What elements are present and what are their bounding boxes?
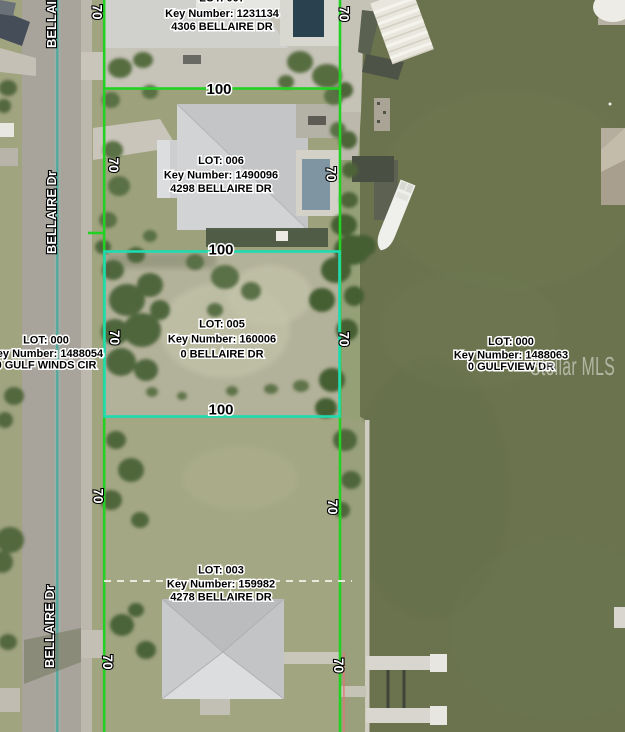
svg-text:LOT: 006: LOT: 006 (198, 155, 244, 167)
svg-text:Key Number: 1488054: Key Number: 1488054 (0, 348, 104, 360)
svg-text:4298 BELLAIRE DR: 4298 BELLAIRE DR (170, 183, 272, 195)
svg-text:100: 100 (208, 402, 233, 419)
svg-text:70: 70 (100, 654, 115, 669)
svg-text:BELLAIRE Dr: BELLAIRE Dr (42, 585, 57, 668)
svg-text:4278 BELLAIRE DR: 4278 BELLAIRE DR (170, 592, 272, 604)
svg-text:70: 70 (337, 331, 352, 346)
svg-text:70: 70 (107, 330, 122, 345)
svg-text:70: 70 (324, 166, 339, 181)
svg-text:Key Number: 1490096: Key Number: 1490096 (164, 170, 278, 182)
svg-text:LOT: 000: LOT: 000 (488, 336, 534, 348)
svg-text:70: 70 (337, 6, 352, 21)
svg-text:BELLAIRE Dr: BELLAIRE Dr (44, 171, 59, 254)
svg-text:4306 BELLAIRE DR: 4306 BELLAIRE DR (171, 21, 273, 33)
svg-text:70: 70 (91, 488, 106, 503)
svg-text:LOT: 003: LOT: 003 (198, 565, 244, 577)
svg-text:100: 100 (208, 242, 233, 259)
svg-text:70: 70 (106, 157, 121, 172)
svg-text:BELLAIRE Dr: BELLAIRE Dr (44, 0, 59, 48)
svg-text:70: 70 (331, 658, 346, 673)
svg-text:70: 70 (90, 4, 105, 19)
svg-text:70: 70 (325, 499, 340, 514)
svg-text:LOT: 007: LOT: 007 (199, 0, 245, 5)
svg-text:LOT: 000: LOT: 000 (23, 335, 69, 347)
svg-text:Key Number: 1231134: Key Number: 1231134 (165, 8, 280, 20)
svg-text:0 BELLAIRE DR: 0 BELLAIRE DR (180, 349, 263, 361)
svg-text:100: 100 (206, 81, 231, 98)
svg-text:LOT: 005: LOT: 005 (199, 319, 245, 331)
svg-text:Key Number: 159982: Key Number: 159982 (167, 579, 275, 591)
svg-text:0 GULF WINDS CIR: 0 GULF WINDS CIR (0, 360, 96, 372)
svg-text:Stellar MLS: Stellar MLS (530, 353, 615, 381)
svg-text:Key Number: 160006: Key Number: 160006 (168, 334, 276, 346)
